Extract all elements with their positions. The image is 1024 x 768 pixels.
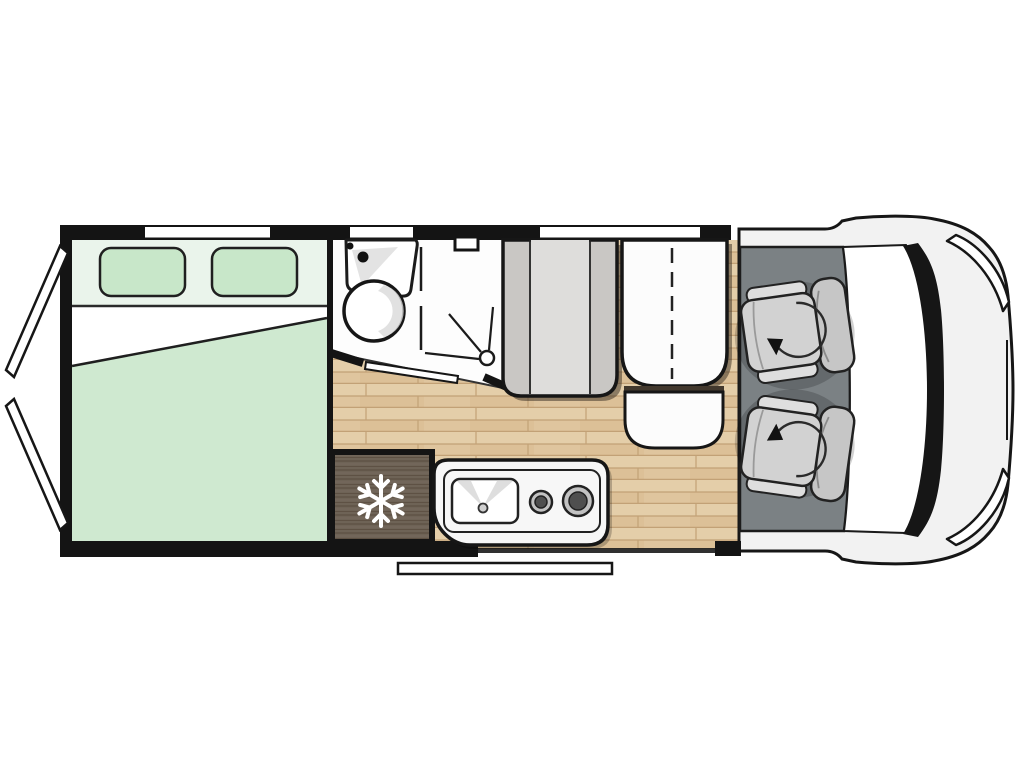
rear-bedroom — [72, 240, 327, 541]
entry-step — [398, 563, 612, 574]
roof-vent — [455, 237, 478, 250]
floorplan-canvas — [0, 0, 1024, 768]
window-bedroom — [145, 227, 270, 238]
burner-large-center — [569, 492, 587, 510]
wall-stub — [715, 541, 741, 556]
kitchen-unit — [434, 460, 612, 549]
faucet-dot-large — [358, 252, 369, 263]
pillow-left — [100, 248, 185, 296]
sink-drain-dot — [479, 504, 488, 513]
burner-small-center — [535, 496, 547, 508]
window-lounge — [540, 227, 700, 238]
cab — [728, 216, 1013, 564]
bench-cushion — [531, 240, 589, 394]
faucet-dot-small — [347, 243, 354, 250]
window-bathroom — [350, 227, 413, 238]
motorhome-floorplan-page — [0, 0, 1024, 768]
folding-table — [622, 240, 727, 386]
pillow-right — [212, 248, 297, 296]
side-bench — [625, 392, 723, 448]
dashboard — [843, 245, 929, 533]
refrigerator — [332, 452, 432, 542]
